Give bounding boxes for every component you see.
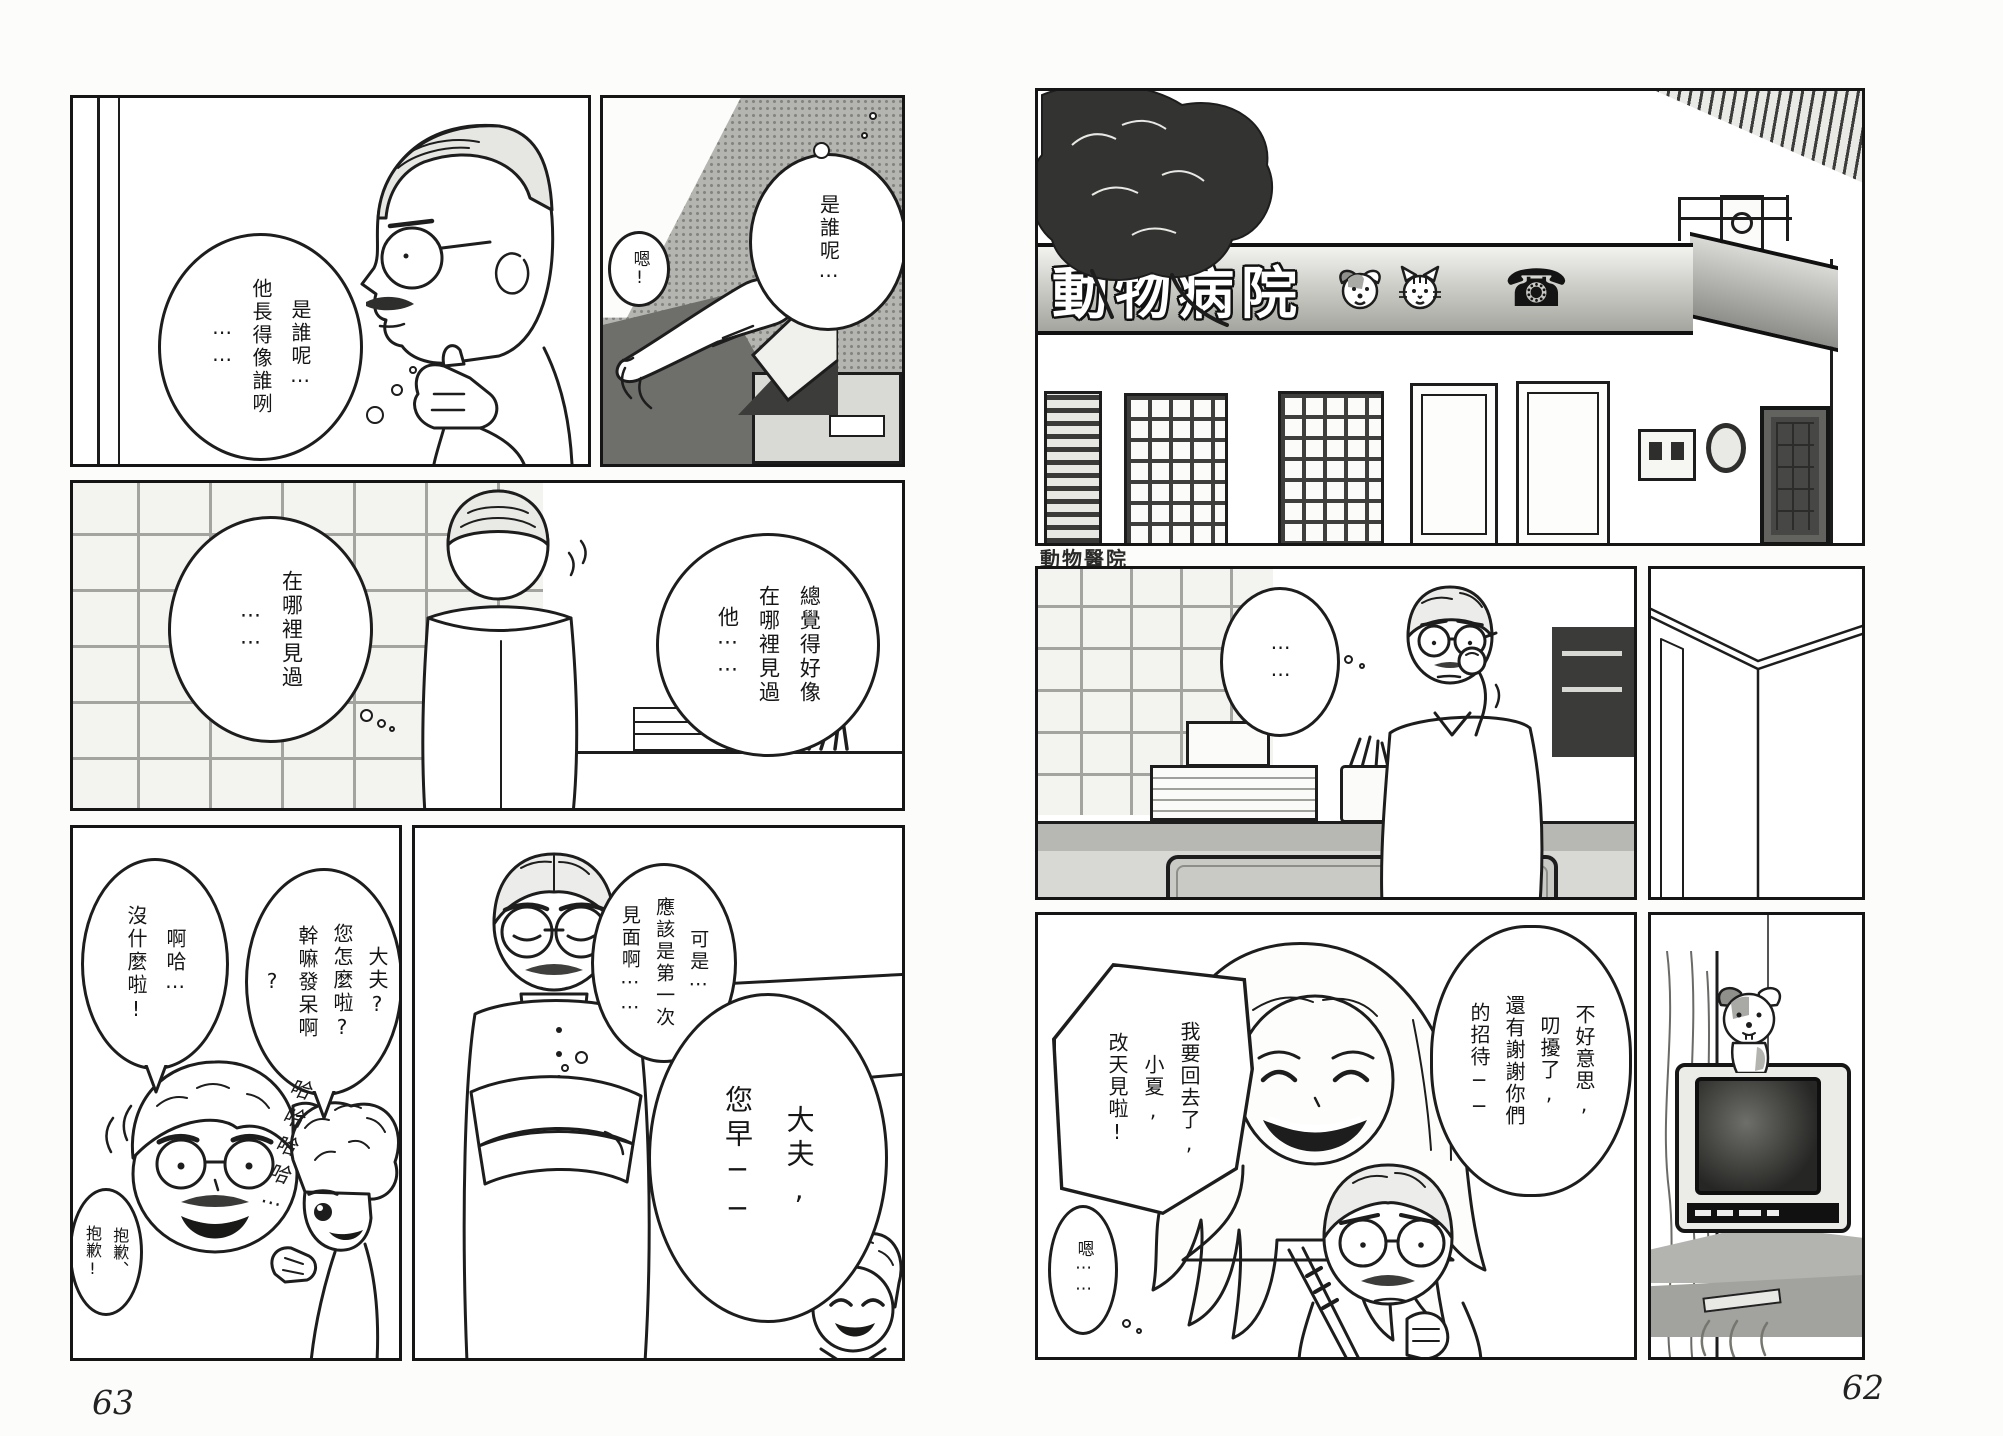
slatted-door bbox=[1044, 391, 1102, 546]
left-panel-doctor-laughing: 啊哈⋯ 沒什麼啦! 大夫? 您怎麼啦? 幹嘛發呆啊 ? 哈哈哈哈⋯ 抱歉、 抱歉… bbox=[70, 825, 402, 1361]
tv-control-bar bbox=[1687, 1203, 1839, 1223]
thought-trail-dot bbox=[377, 719, 386, 728]
left-panel-doctor-greeted: 可是⋯ 應該是第一次 見面啊⋯⋯ 大夫, 您早── bbox=[412, 825, 905, 1361]
hmm-bubble-text: 嗯⋯⋯ bbox=[1066, 1240, 1099, 1300]
leaving-bubble-text: 我要回去了, 小夏, 改天見啦! bbox=[1099, 1021, 1207, 1157]
door-frame bbox=[1410, 383, 1498, 546]
wall-screw-dot bbox=[861, 132, 868, 139]
thanks-bubble-text: 不好意思, 叨擾了, 還有謝謝你們 的招待── bbox=[1461, 995, 1601, 1127]
motion-arcs bbox=[1691, 1313, 1811, 1359]
thought-trail-dot bbox=[1359, 663, 1365, 669]
right-page-number: 62 bbox=[1842, 1368, 1884, 1407]
thought-trail-dot bbox=[575, 1051, 588, 1064]
speech-bubble: 是誰呢⋯ bbox=[749, 153, 905, 331]
vent-circle bbox=[1731, 212, 1753, 234]
silence-thought-text: ⋯⋯ bbox=[1261, 635, 1300, 689]
doctor-reply-bubble: 啊哈⋯ 沒什麼啦! bbox=[81, 858, 229, 1070]
silence-thought-bubble: ⋯⋯ bbox=[1220, 587, 1340, 737]
tv-set bbox=[1675, 1063, 1851, 1233]
manga-spread: 是誰呢⋯ 他長得像誰咧 ⋯⋯ 嗯! 是誰呢⋯ bbox=[0, 0, 2003, 1436]
vet-pondering-art bbox=[1283, 1143, 1498, 1360]
telephone-icon: ☎ bbox=[1504, 263, 1569, 315]
thought-trail-dot bbox=[366, 406, 384, 424]
right-panel-goodbye: 不好意思, 叨擾了, 還有謝謝你們 的招待── 我要回去了, 小夏, 改天見啦!… bbox=[1035, 912, 1637, 1360]
left-panel-glass-wall: 在哪裡見過 ⋯⋯ 總覺得好像 在哪裡見過 他⋯⋯ bbox=[70, 480, 905, 811]
right-panel-hospital-exterior: 動物病院 bbox=[1035, 88, 1865, 546]
sorry-bubble-text: 抱歉、 抱歉! bbox=[79, 1225, 133, 1279]
dog-art bbox=[1703, 985, 1797, 1073]
speech-anchor-dot bbox=[813, 142, 830, 159]
thought-bubble-left: 在哪裡見過 ⋯⋯ bbox=[168, 516, 373, 743]
window-frame-line bbox=[118, 98, 120, 464]
thought-bubble-left-text: 在哪裡見過 ⋯⋯ bbox=[230, 570, 312, 690]
wall-screw-dot bbox=[869, 112, 877, 120]
cabinet-dark bbox=[1552, 627, 1634, 757]
boy-question-text: 大夫? 您怎麼啦? 幹嘛發呆啊 ? bbox=[254, 923, 394, 1042]
greeting-bubble-text: 大夫, 您早── bbox=[706, 1085, 829, 1231]
lattice-window bbox=[1124, 393, 1228, 546]
thought-bubble-text: 是誰呢⋯ 他長得像誰咧 ⋯⋯ bbox=[202, 278, 319, 416]
intercom-plate bbox=[1638, 429, 1696, 481]
bubble-tail bbox=[311, 1091, 337, 1121]
thought-bubble-right: 總覺得好像 在哪裡見過 他⋯⋯ bbox=[656, 533, 880, 757]
cat-face-icon bbox=[1394, 265, 1446, 313]
greeting-bubble: 大夫, 您早── bbox=[648, 993, 888, 1323]
left-panel-doctor-profile: 是誰呢⋯ 他長得像誰咧 ⋯⋯ bbox=[70, 95, 591, 467]
bubble-tail bbox=[143, 1065, 169, 1095]
boy-question-bubble: 大夫? 您怎麼啦? 幹嘛發呆啊 ? bbox=[245, 868, 402, 1096]
thought-bubble: 是誰呢⋯ 他長得像誰咧 ⋯⋯ bbox=[158, 233, 363, 461]
right-panel-vet-thinking: ⋯⋯ bbox=[1035, 566, 1637, 900]
roof-hatching bbox=[1656, 91, 1865, 185]
press-sfx-text: 嗯! bbox=[622, 250, 655, 289]
porthole-window bbox=[1706, 423, 1746, 473]
left-page-number: 63 bbox=[92, 1383, 134, 1422]
speech-bubble-text: 是誰呢⋯ bbox=[809, 194, 848, 290]
dog-face-icon bbox=[1334, 265, 1386, 313]
dark-entry-door bbox=[1760, 406, 1830, 546]
thought-trail-dot bbox=[389, 726, 395, 732]
press-sfx-bubble: 嗯! bbox=[608, 231, 670, 307]
thought-trail-dot bbox=[1122, 1319, 1131, 1328]
thought-trail-dot bbox=[391, 384, 403, 396]
vet-thinking-art bbox=[1330, 573, 1560, 900]
thought-bubble-text: 可是⋯ 應該是第一次 見面啊⋯⋯ bbox=[613, 897, 716, 1029]
hmm-bubble: 嗯⋯⋯ bbox=[1048, 1205, 1118, 1335]
window-frame-line bbox=[97, 98, 100, 464]
sorry-bubble: 抱歉、 抱歉! bbox=[70, 1188, 143, 1316]
thanks-bubble: 不好意思, 叨擾了, 還有謝謝你們 的招待── bbox=[1430, 925, 1632, 1197]
tree-art bbox=[1035, 88, 1282, 335]
left-panel-doorbell-hand: 嗯! 是誰呢⋯ bbox=[600, 95, 905, 467]
right-panel-dog-on-tv bbox=[1648, 912, 1865, 1360]
thought-trail-dot bbox=[409, 366, 417, 374]
thought-bubble-right-text: 總覺得好像 在哪裡見過 他⋯⋯ bbox=[707, 585, 830, 705]
room-corner-art bbox=[1651, 569, 1865, 900]
doctor-back-art bbox=[373, 483, 633, 811]
lattice-window bbox=[1278, 391, 1384, 546]
doctor-reply-text: 啊哈⋯ 沒什麼啦! bbox=[116, 905, 194, 1024]
thought-trail-dot bbox=[1136, 1328, 1142, 1334]
sign-band-side bbox=[1690, 232, 1838, 352]
towel-stack bbox=[1150, 765, 1318, 821]
door-frame bbox=[1516, 381, 1610, 546]
right-panel-room-corner bbox=[1648, 566, 1865, 900]
leaving-bubble: 我要回去了, 小夏, 改天見啦! bbox=[1052, 963, 1254, 1215]
thought-trail-dot bbox=[561, 1064, 569, 1072]
tv-screen bbox=[1695, 1077, 1821, 1195]
thought-trail-dot bbox=[1344, 655, 1353, 664]
thought-trail-dot bbox=[360, 709, 373, 722]
